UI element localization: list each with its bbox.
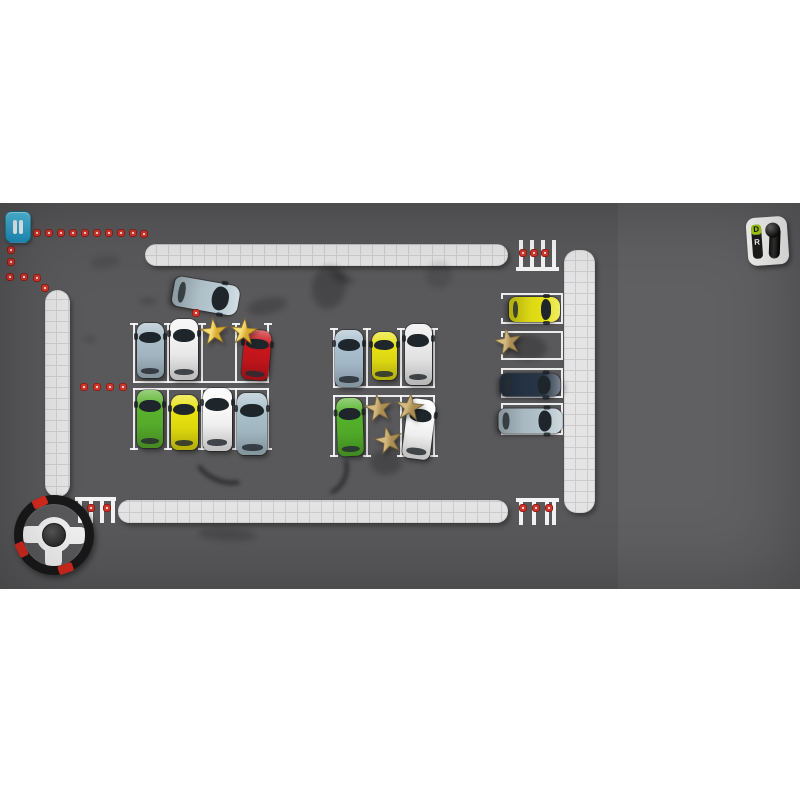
car-windshield bbox=[374, 340, 395, 350]
spot-divider-cap bbox=[264, 323, 272, 325]
car-rear-window bbox=[512, 300, 518, 318]
crosswalk-dot bbox=[545, 504, 553, 512]
spot-divider bbox=[167, 388, 169, 450]
spot-divider-cap bbox=[363, 328, 371, 330]
car-mirror bbox=[234, 405, 238, 412]
wheel-hub bbox=[42, 523, 66, 547]
car-windshield bbox=[205, 398, 229, 411]
car-mirror bbox=[163, 333, 167, 340]
car-windshield bbox=[173, 329, 196, 342]
pause-icon bbox=[13, 220, 17, 234]
parked-van-white bbox=[203, 388, 232, 451]
car-mirror bbox=[431, 335, 435, 342]
crosswalk-dot bbox=[103, 504, 111, 512]
star-pickup bbox=[491, 325, 526, 360]
car-mirror bbox=[266, 405, 270, 412]
spot-divider bbox=[133, 388, 135, 450]
spot-divider-cap bbox=[130, 448, 138, 450]
tire-skid-mark bbox=[84, 336, 95, 342]
path-dot bbox=[41, 284, 49, 292]
crosswalk-dot bbox=[519, 504, 527, 512]
steering-wheel-control[interactable] bbox=[14, 495, 94, 575]
spot-divider bbox=[267, 388, 269, 450]
car-mirror bbox=[333, 409, 337, 416]
parked-car-yellow2 bbox=[372, 332, 397, 380]
gear-drive-button[interactable]: D bbox=[751, 224, 762, 235]
path-dot bbox=[80, 383, 88, 391]
car-mirror bbox=[433, 412, 438, 419]
crosswalk-stripe bbox=[111, 501, 115, 523]
car-windshield bbox=[139, 332, 161, 344]
star-pickup bbox=[370, 422, 407, 459]
car-mirror bbox=[200, 399, 204, 406]
spot-divider bbox=[333, 395, 335, 457]
path-dot bbox=[81, 229, 89, 237]
car-rear-window bbox=[339, 376, 359, 382]
path-dot bbox=[20, 273, 28, 281]
car-mirror bbox=[543, 294, 550, 298]
car-mirror bbox=[134, 333, 138, 340]
car-rear-window bbox=[141, 368, 160, 374]
crosswalk-dot bbox=[530, 249, 538, 257]
gear-shifter[interactable]: D R bbox=[745, 216, 789, 267]
car-mirror bbox=[396, 341, 400, 348]
parked-car-green bbox=[137, 390, 163, 448]
path-dot bbox=[45, 229, 53, 237]
parked-car-yellow bbox=[171, 395, 198, 450]
top-curb bbox=[145, 244, 508, 266]
crosswalk-stripe bbox=[552, 240, 556, 267]
tire-skid-mark bbox=[89, 253, 121, 271]
star-pickup bbox=[392, 390, 426, 424]
path-dot bbox=[119, 383, 127, 391]
parked-car-slate bbox=[237, 393, 267, 455]
path-dot bbox=[105, 229, 113, 237]
tire-skid-mark bbox=[198, 526, 257, 542]
spot-divider bbox=[366, 328, 368, 388]
car-rear-window bbox=[141, 438, 159, 444]
car-windshield bbox=[538, 411, 551, 432]
parked-car-white bbox=[170, 319, 198, 380]
path-dot bbox=[7, 246, 15, 254]
path-dot bbox=[33, 229, 41, 237]
car-mirror bbox=[542, 371, 549, 375]
parked-car-silver bbox=[137, 323, 164, 378]
crosswalk-dot bbox=[532, 504, 540, 512]
parked-car-yellow3 bbox=[509, 297, 560, 322]
top-crosswalk bbox=[516, 240, 559, 271]
car-rear-window bbox=[504, 377, 511, 393]
parked-car-silver2 bbox=[498, 409, 562, 434]
car-mirror bbox=[168, 405, 172, 412]
car-rear-window bbox=[174, 369, 194, 376]
bottom-crosswalk bbox=[516, 498, 559, 525]
car-mirror bbox=[269, 341, 274, 348]
car-mirror bbox=[543, 321, 550, 325]
tire-skid-mark bbox=[140, 298, 156, 304]
car-rear-window bbox=[175, 440, 194, 446]
crosswalk-end-bar bbox=[516, 267, 559, 271]
path-dot bbox=[93, 383, 101, 391]
spot-divider-cap bbox=[430, 455, 438, 457]
car-windshield bbox=[240, 404, 265, 417]
pause-icon bbox=[19, 220, 23, 234]
parked-suv-white bbox=[405, 324, 432, 385]
crosswalk-dot bbox=[519, 249, 527, 257]
car-windshield bbox=[540, 299, 551, 320]
car-mirror bbox=[134, 401, 138, 408]
star-pickup bbox=[360, 390, 395, 425]
tire-skid-mark bbox=[308, 262, 349, 311]
car-rear-window bbox=[207, 439, 227, 446]
path-dot bbox=[33, 274, 41, 282]
spot-divider-cap bbox=[330, 455, 338, 457]
car-mirror bbox=[162, 401, 166, 408]
gear-reverse-button[interactable]: R bbox=[752, 237, 763, 248]
parked-suv-navy bbox=[500, 374, 560, 397]
parked-car-green2 bbox=[336, 398, 364, 457]
car-mirror bbox=[332, 340, 336, 347]
path-dot bbox=[7, 258, 15, 266]
gear-track: D R bbox=[751, 224, 763, 259]
car-windshield bbox=[139, 400, 160, 412]
right-curb bbox=[564, 250, 595, 513]
path-dot bbox=[93, 229, 101, 237]
car-mirror bbox=[402, 335, 406, 342]
path-dot bbox=[106, 383, 114, 391]
path-dot bbox=[129, 229, 137, 237]
path-dot bbox=[140, 230, 148, 238]
game-frame: D R bbox=[0, 0, 800, 800]
pause-button[interactable] bbox=[5, 211, 31, 243]
car-windshield bbox=[173, 404, 195, 416]
crosswalk-dot bbox=[541, 249, 549, 257]
star-pickup bbox=[228, 316, 260, 348]
star-pickup bbox=[198, 316, 231, 349]
car-mirror bbox=[543, 406, 550, 410]
car-mirror bbox=[543, 433, 550, 437]
car-mirror bbox=[362, 340, 366, 347]
parking-lot-scene: D R bbox=[0, 203, 800, 589]
spot-divider-cap bbox=[363, 455, 371, 457]
car-rear-window bbox=[242, 444, 263, 451]
player-car[interactable] bbox=[171, 275, 241, 316]
bottom-curb bbox=[118, 500, 508, 523]
car-windshield bbox=[407, 334, 429, 347]
car-rear-window bbox=[502, 412, 509, 430]
parked-suv-slate bbox=[335, 330, 363, 387]
car-mirror bbox=[542, 396, 549, 400]
path-dot bbox=[117, 229, 125, 237]
car-rear-window bbox=[409, 374, 428, 381]
path-dot bbox=[6, 273, 14, 281]
car-windshield bbox=[537, 376, 550, 395]
car-rear-window bbox=[375, 371, 393, 376]
car-mirror bbox=[167, 330, 171, 337]
car-windshield bbox=[338, 339, 361, 351]
path-dot bbox=[69, 229, 77, 237]
path-dot bbox=[192, 309, 200, 317]
left-curb bbox=[45, 290, 70, 497]
path-dot bbox=[57, 229, 65, 237]
car-mirror bbox=[369, 341, 373, 348]
tire-skid-mark bbox=[246, 294, 288, 318]
